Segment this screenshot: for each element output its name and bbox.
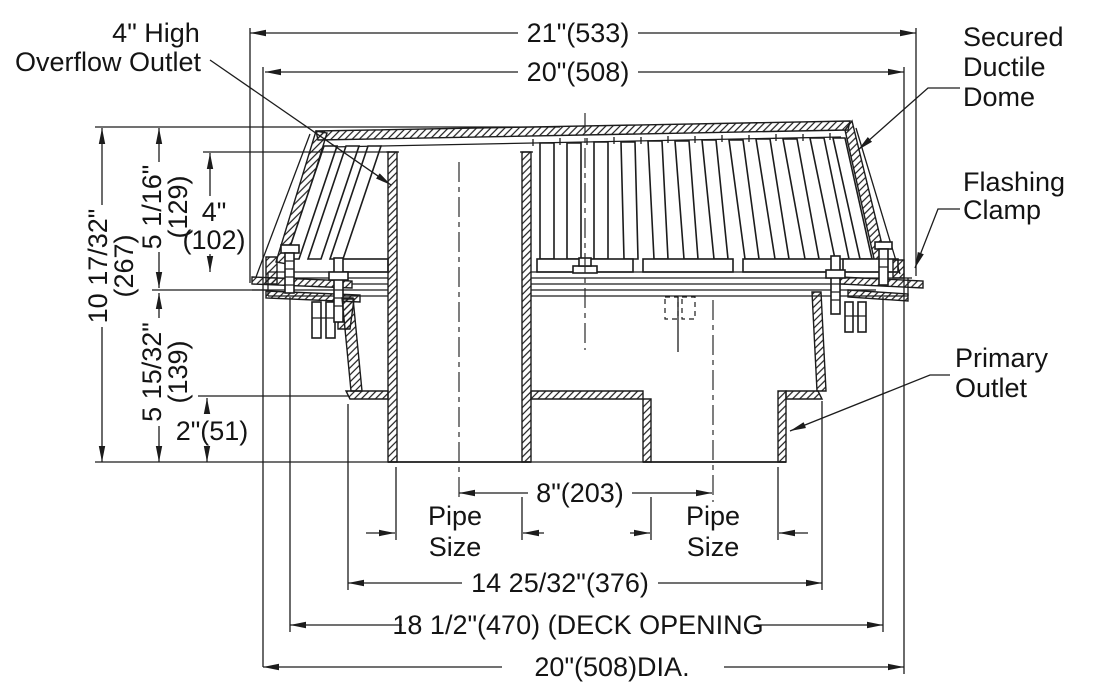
dome-slats-right (540, 138, 872, 259)
drawing-sheet: 21"(533) 20"(508) 10 17/32" (267) 5 1/16… (0, 0, 1099, 700)
pipe-size-right-1: Pipe (686, 501, 740, 531)
dim-deck-opening: 18 1/2"(470) (DECK OPENING (392, 610, 763, 640)
label-clamp-1: Flashing (963, 167, 1065, 197)
label-dome-2: Ductile (963, 52, 1046, 82)
callout-texts: Secured Ductile Dome Flashing Clamp Prim… (955, 22, 1065, 403)
leader-primary-outlet (790, 375, 950, 431)
label-clamp-2: Clamp (963, 195, 1041, 225)
roof-drain-technical-drawing: 21"(533) 20"(508) 10 17/32" (267) 5 1/16… (0, 0, 1099, 700)
underdeck-bracket-right (845, 302, 866, 332)
label-overflow-1: 4" High (112, 18, 200, 48)
label-primary-2: Outlet (955, 373, 1028, 403)
dim-overflow-height: 4" (202, 197, 227, 227)
dim-outlet-spacing: 8"(203) (536, 478, 624, 508)
label-dome-1: Secured (963, 22, 1064, 52)
dim-outlet-stub: 2"(51) (176, 416, 249, 446)
label-overflow-2: Overflow Outlet (15, 47, 202, 77)
pipe-size-left-2: Size (429, 532, 482, 562)
sump-wall-left (342, 298, 362, 391)
dim-top-width: 21"(533) (527, 18, 630, 48)
dim-bottom-diameter: 20"(508)DIA. (534, 652, 689, 682)
label-primary-1: Primary (955, 343, 1048, 373)
primary-outlet (643, 391, 786, 462)
dim-dome-width: 20"(508) (527, 57, 630, 87)
drain-body (342, 292, 826, 399)
dim-overall-height-mm: (267) (109, 234, 139, 297)
leader-overflow-outlet (210, 60, 391, 185)
leader-flashing-clamp (915, 209, 960, 268)
dim-overflow-height-mm: (102) (182, 225, 245, 255)
pipe-size-right-2: Size (687, 532, 740, 562)
leader-secured-dome (858, 88, 960, 150)
dome (256, 121, 900, 277)
dim-body-width: 14 25/32"(376) (471, 568, 649, 598)
label-dome-3: Dome (963, 82, 1035, 112)
pipe-size-left-1: Pipe (428, 501, 482, 531)
centerlines (459, 113, 713, 502)
dim-lower-height-mm: (139) (163, 340, 193, 403)
sump-wall-right (812, 292, 826, 391)
